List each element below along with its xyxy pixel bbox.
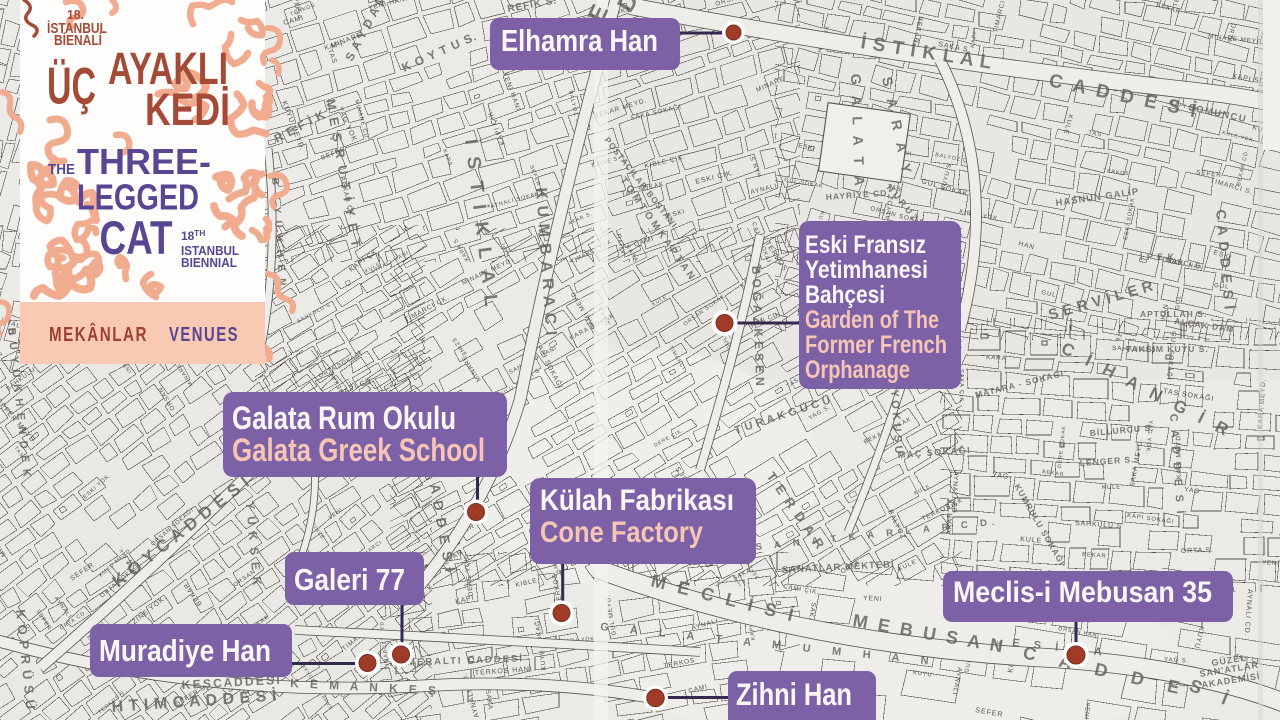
svg-text:TAKSİM KUYU S.: TAKSİM KUYU S.	[1126, 344, 1209, 354]
svg-text:Former French: Former French	[805, 331, 947, 359]
svg-text:KEDİ: KEDİ	[145, 84, 230, 135]
svg-text:İ P E K: İ P E K	[1140, 252, 1175, 262]
svg-text:APTULLAH S.: APTULLAH S.	[1140, 309, 1207, 319]
svg-text:Eski Fransız: Eski Fransız	[805, 231, 926, 259]
svg-text:Zihni Han: Zihni Han	[736, 676, 852, 712]
svg-text:VENUES: VENUES	[169, 324, 239, 346]
svg-text:Galata Rum Okulu: Galata Rum Okulu	[232, 400, 456, 436]
svg-text:KULE: KULE	[1102, 485, 1121, 491]
svg-text:ORTA S.: ORTA S.	[1181, 547, 1214, 555]
svg-text:BİENALİ: BİENALİ	[54, 32, 102, 49]
svg-text:18.: 18.	[67, 7, 84, 22]
svg-text:ÜÇ: ÜÇ	[47, 58, 96, 116]
svg-text:Elhamra Han: Elhamra Han	[501, 23, 658, 58]
svg-text:Meclis-i Mebusan 35: Meclis-i Mebusan 35	[953, 576, 1212, 609]
svg-text:TH: TH	[194, 228, 205, 238]
svg-text:Galata Greek School: Galata Greek School	[232, 432, 485, 468]
svg-text:Garden of The: Garden of The	[805, 306, 939, 334]
svg-text:Orphanage: Orphanage	[805, 356, 910, 384]
svg-text:18: 18	[181, 229, 195, 243]
svg-text:CAT: CAT	[100, 211, 173, 264]
svg-text:Galeri 77: Galeri 77	[294, 562, 405, 597]
svg-text:Cone Factory: Cone Factory	[540, 516, 703, 549]
svg-text:Yetimhanesi: Yetimhanesi	[805, 256, 928, 284]
svg-text:Külah Fabrikası: Külah Fabrikası	[540, 484, 734, 517]
svg-text:MEKÂNLAR: MEKÂNLAR	[49, 322, 148, 346]
svg-text:THE: THE	[48, 161, 75, 178]
svg-text:KARA: KARA	[986, 354, 1007, 362]
svg-text:BIENNIAL: BIENNIAL	[181, 256, 237, 270]
svg-text:Muradiye Han: Muradiye Han	[99, 633, 271, 668]
svg-text:YENI: YENI	[863, 595, 883, 603]
svg-text:Bahçesi: Bahçesi	[805, 281, 885, 309]
